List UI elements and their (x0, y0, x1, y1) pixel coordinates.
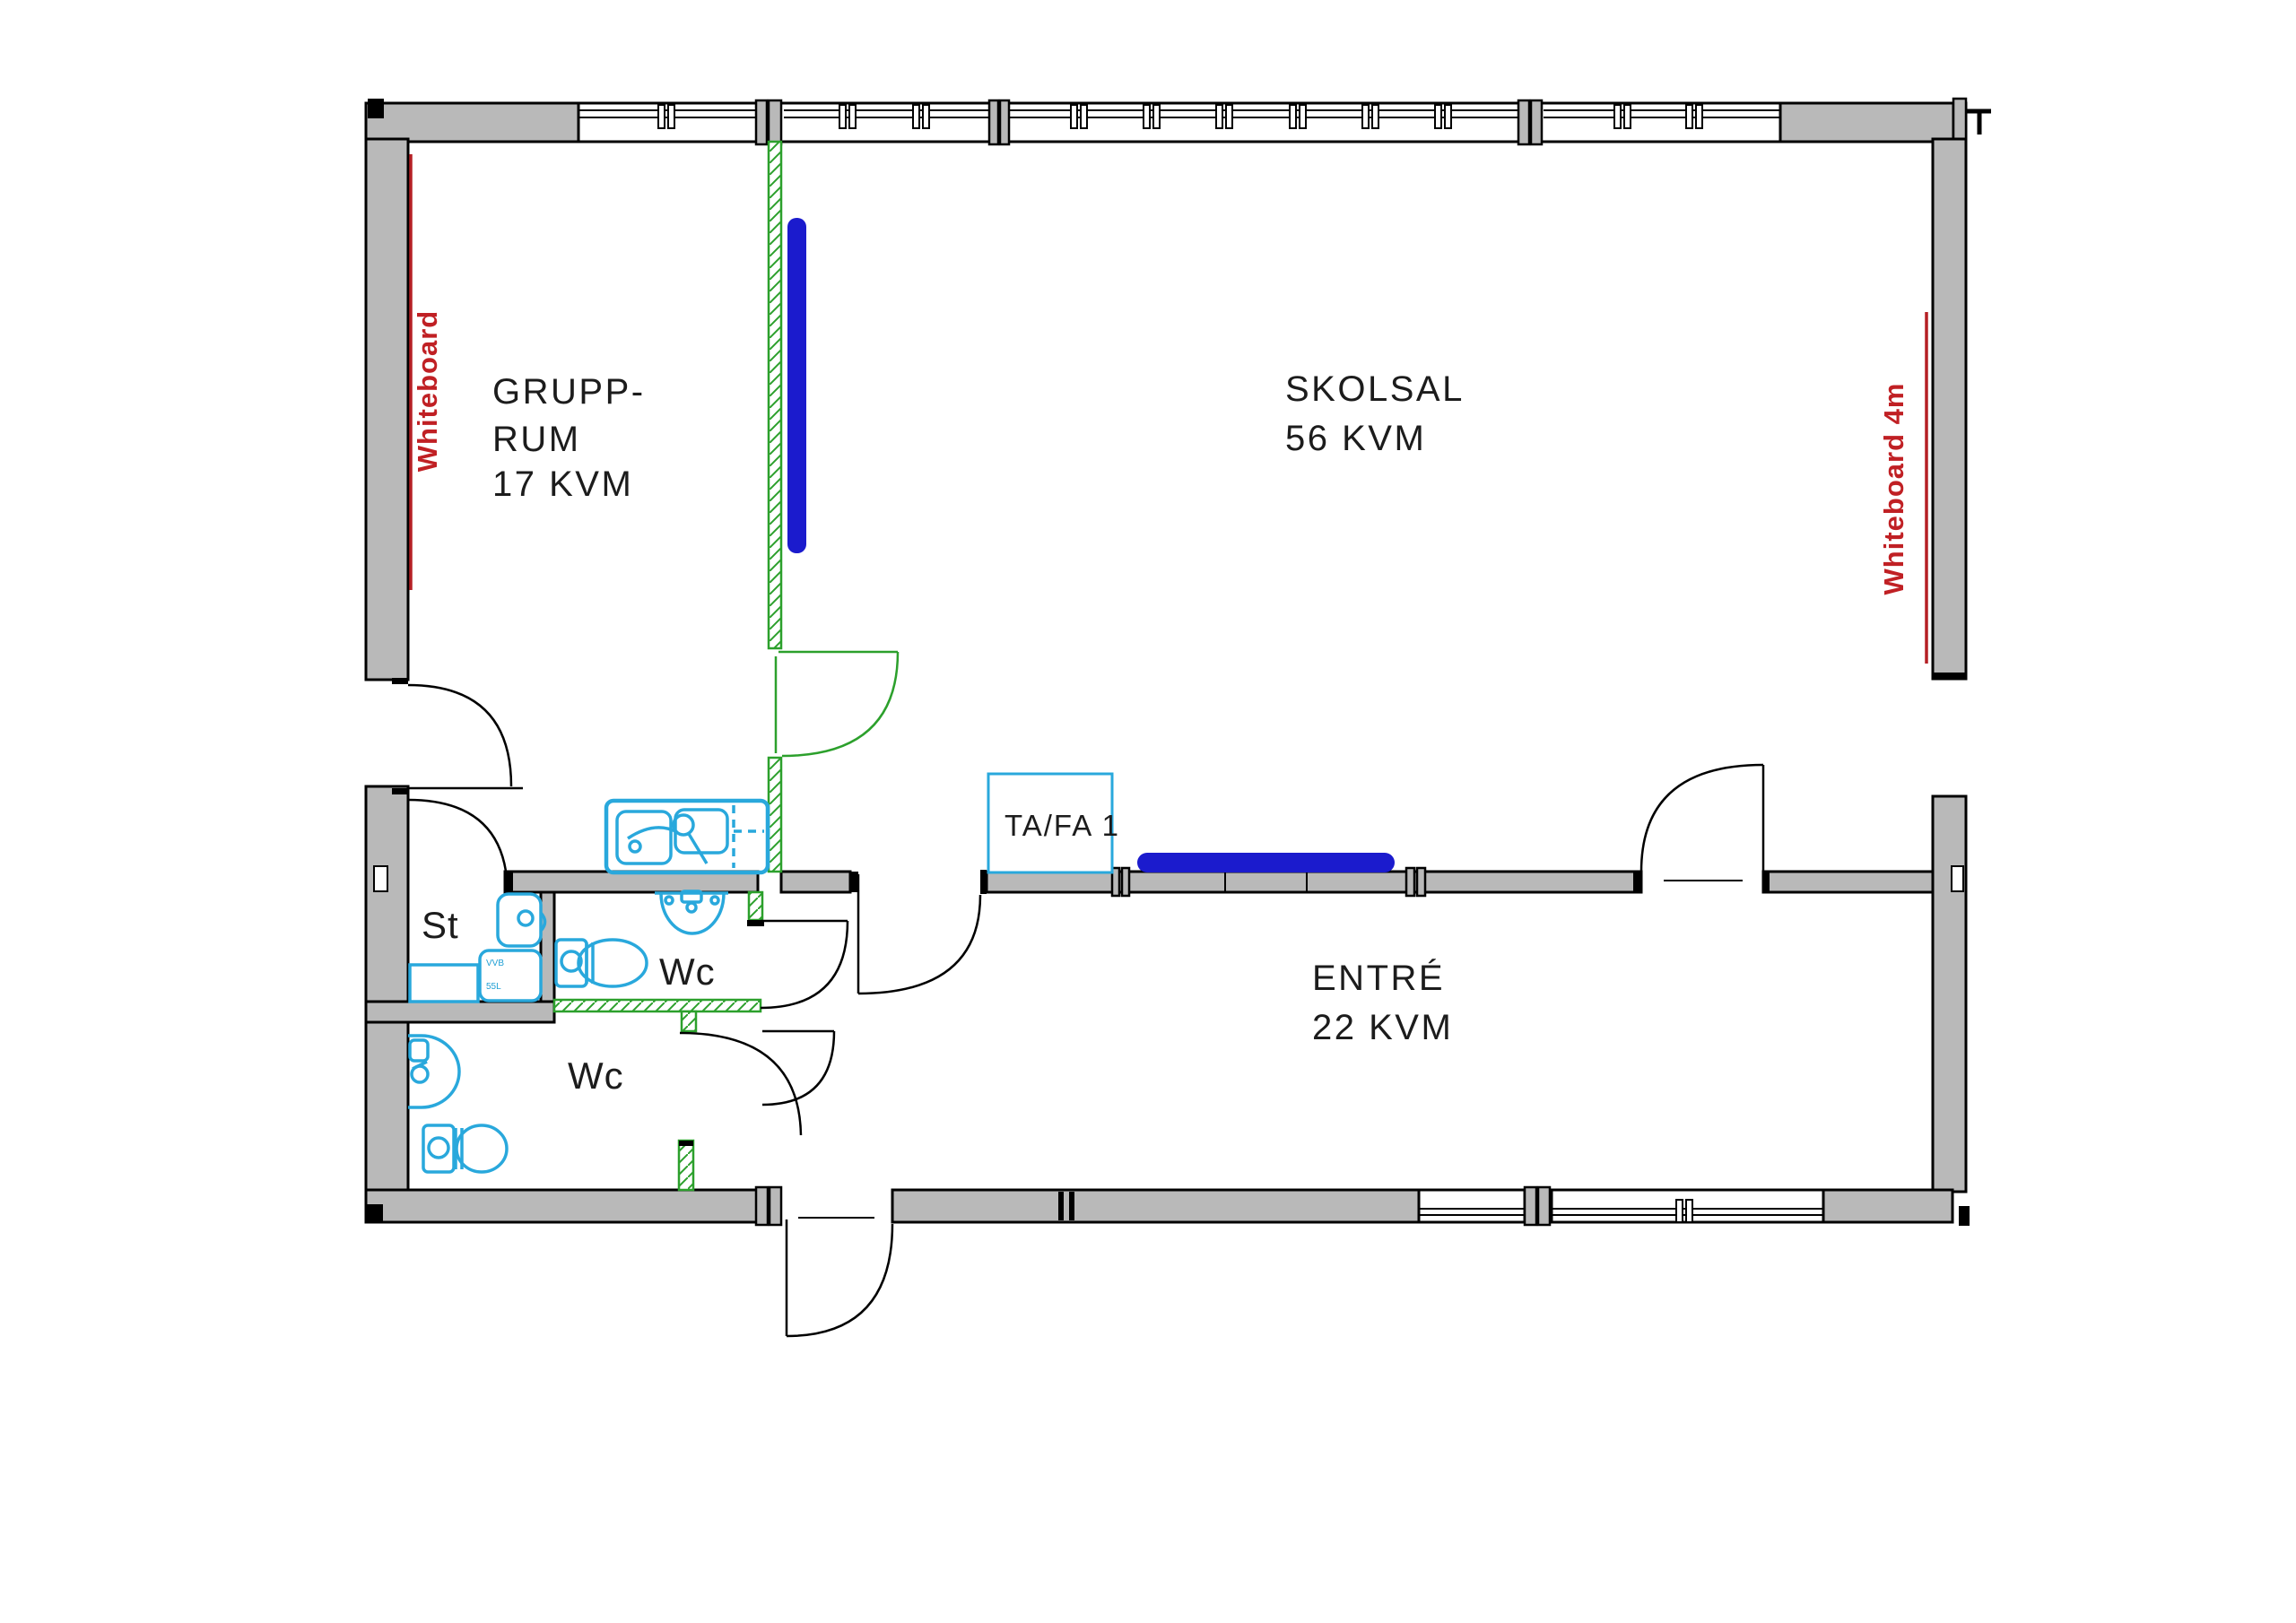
corridor-wall (505, 872, 758, 892)
wc-lower-label: Wc (568, 1055, 624, 1097)
top-wall-solid-left (366, 103, 578, 142)
skolsal-area: 56 KVM (1285, 419, 1426, 458)
grupp-rum-label-2: RUM (492, 420, 581, 459)
corridor-wall (1763, 872, 1933, 892)
whiteboard-right-label: Whiteboard 4m (1878, 383, 1909, 595)
green-door (776, 652, 898, 756)
green-stub (679, 1141, 693, 1190)
corridor-wall (987, 872, 1641, 892)
green-partition-lower (769, 758, 781, 872)
green-stub (749, 892, 762, 920)
floor-plan: VVB 55L (0, 0, 2296, 1623)
left-wall (366, 139, 408, 1192)
st-sink (498, 894, 545, 946)
grupp-rum-label-1: GRUPP- (492, 372, 646, 412)
whiteboard-bar-vertical (787, 218, 806, 553)
fixtures: VVB 55L (408, 774, 1120, 1172)
entrance-post (770, 1187, 781, 1225)
green-wc-wall (554, 1000, 761, 1011)
st-bottom-wall (366, 1002, 554, 1022)
st-label: St (422, 904, 459, 946)
bottom-wall (366, 1187, 1970, 1226)
corner-mark-bottom-left (366, 1204, 383, 1222)
bottom-window (1419, 1190, 1525, 1222)
st-corridor-door (408, 800, 508, 895)
green-walls (554, 142, 898, 1190)
corner-mark-top-right (1966, 111, 1991, 135)
st-right-wall (541, 892, 554, 1002)
grupp-rum-door (408, 685, 523, 788)
wc-lower-toilet (423, 1125, 507, 1172)
wc-upper-toilet (556, 940, 647, 986)
entre-label: ENTRÉ (1312, 958, 1445, 998)
corridor-wall (781, 872, 850, 892)
top-wall (366, 99, 1991, 144)
water-heater: VVB 55L (480, 950, 541, 1001)
corner-mark-top-left (368, 99, 384, 118)
wc-upper-door (761, 921, 848, 1008)
wc-lower-door (680, 1031, 834, 1135)
skolsal-label: SKOLSAL (1285, 369, 1465, 409)
water-heater-label-2: 55L (486, 982, 501, 992)
entrance-post (756, 1187, 768, 1225)
wc-upper-basin (655, 891, 728, 933)
entrance-door (787, 1218, 892, 1336)
wc-lower-basin (408, 1036, 459, 1107)
green-stub (682, 1011, 696, 1031)
st-bench (410, 965, 478, 1002)
corner-mark-bottom-right (1959, 1206, 1970, 1226)
wc-upper-label: Wc (659, 950, 716, 993)
left-wall-niche (374, 866, 387, 891)
corridor-door (858, 874, 980, 994)
whiteboard-left-label: Whiteboard (412, 310, 443, 473)
right-wall-niche (1952, 866, 1963, 891)
tafa-box: TA/FA 1 (988, 774, 1120, 872)
top-wall-solid-right (1780, 103, 1953, 142)
right-wall (1933, 139, 1966, 1192)
skolsal-door (1641, 765, 1763, 881)
grupp-rum-area: 17 KVM (492, 464, 633, 504)
whiteboard-bar-horizontal (1137, 853, 1395, 872)
entre-area: 22 KVM (1312, 1008, 1453, 1047)
tafa-label: TA/FA 1 (1004, 809, 1120, 842)
green-partition-upper (769, 142, 781, 648)
kitchen-sink (606, 801, 768, 872)
water-heater-label-1: VVB (486, 959, 504, 968)
